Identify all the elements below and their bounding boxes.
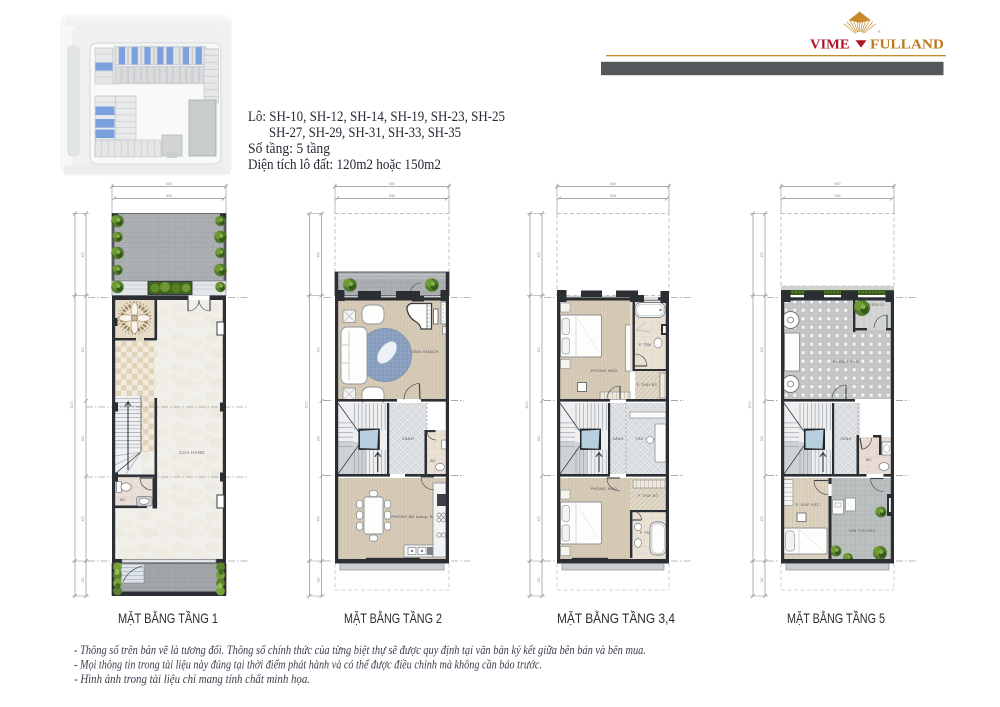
svg-text:160: 160 [537, 577, 541, 583]
svg-text:470: 470 [317, 252, 321, 258]
svg-text:Số tầng: 5 tầng: Số tầng: 5 tầng [248, 141, 331, 157]
svg-text:WC: WC [866, 458, 873, 462]
svg-text:600: 600 [835, 182, 841, 186]
svg-text:P. THAY ĐỒ: P. THAY ĐỒ [638, 493, 659, 498]
svg-text:- Mọi thông tin trong tài liệu: - Mọi thông tin trong tài liệu này đúng … [74, 658, 542, 672]
svg-text:PHÒNG ĂN &amp; BẾP: PHÒNG ĂN &amp; BẾP [391, 514, 438, 519]
svg-text:SẢNH: SẢNH [612, 436, 623, 441]
svg-text:2000: 2000 [70, 401, 74, 409]
svg-text:600: 600 [610, 182, 616, 186]
svg-text:SẢNH: SẢNH [402, 436, 414, 441]
svg-text:WC: WC [430, 459, 437, 463]
svg-text:P. TẮM: P. TẮM [639, 342, 652, 347]
svg-text:P. THAY ĐỒ: P. THAY ĐỒ [637, 382, 658, 387]
svg-text:470: 470 [317, 516, 321, 522]
svg-text:Lô: SH-10, SH-12, SH-14, SH-19: Lô: SH-10, SH-12, SH-14, SH-19, SH-23, S… [248, 109, 505, 125]
svg-text:470: 470 [81, 252, 85, 258]
svg-text:VIME: VIME [810, 37, 850, 52]
svg-text:500: 500 [317, 347, 321, 353]
svg-text:536: 536 [610, 194, 616, 198]
svg-text:320: 320 [81, 436, 85, 442]
svg-text:SÂN THƯỢNG: SÂN THƯỢNG [848, 529, 875, 533]
svg-text:SẢNH: SẢNH [840, 436, 851, 441]
svg-text:- Hình ảnh trong tài liệu chỉ: - Hình ảnh trong tài liệu chỉ mang tính … [74, 672, 310, 686]
svg-text:536: 536 [166, 194, 172, 198]
svg-text:160: 160 [317, 577, 321, 583]
svg-text:470: 470 [760, 516, 764, 522]
svg-text:500: 500 [81, 347, 85, 353]
svg-text:CỬA HÀNG: CỬA HÀNG [179, 450, 205, 455]
svg-text:600: 600 [389, 182, 395, 186]
svg-text:320: 320 [537, 436, 541, 442]
svg-text:470: 470 [537, 252, 541, 258]
svg-text:MẶT BẰNG TẦNG 5: MẶT BẰNG TẦNG 5 [787, 609, 885, 626]
svg-text:MẶT BẰNG TẦNG 1: MẶT BẰNG TẦNG 1 [118, 609, 218, 626]
svg-text:MẶT BẰNG TẦNG 2: MẶT BẰNG TẦNG 2 [344, 609, 442, 626]
svg-text:600: 600 [166, 182, 172, 186]
svg-text:320: 320 [317, 436, 321, 442]
svg-text:2000: 2000 [748, 401, 752, 409]
svg-text:PHÒNG THỜ: PHÒNG THỜ [833, 359, 860, 364]
svg-text:P. GIÚP VIỆC: P. GIÚP VIỆC [796, 502, 820, 507]
svg-text:536: 536 [835, 194, 841, 198]
svg-text:470: 470 [81, 516, 85, 522]
svg-text:- Thông số trên bản vẽ là tươn: - Thông số trên bản vẽ là tương đối. Thô… [74, 643, 646, 657]
svg-text:2000: 2000 [305, 401, 309, 409]
svg-text:2000: 2000 [525, 401, 529, 409]
svg-text:470: 470 [537, 516, 541, 522]
svg-text:®: ® [878, 29, 882, 34]
svg-text:PHÒNG NGỦ: PHÒNG NGỦ [591, 368, 618, 373]
svg-text:Diện tích lô đất: 120m2 hoặc 1: Diện tích lô đất: 120m2 hoặc 150m2 [248, 157, 441, 173]
svg-text:160: 160 [81, 577, 85, 583]
svg-text:536: 536 [389, 194, 395, 198]
svg-text:PHÒNG NGỦ: PHÒNG NGỦ [591, 486, 618, 491]
svg-text:MẶT BẰNG TẦNG 3,4: MẶT BẰNG TẦNG 3,4 [557, 609, 675, 626]
svg-text:500: 500 [760, 347, 764, 353]
svg-text:160: 160 [760, 577, 764, 583]
svg-text:470: 470 [760, 252, 764, 258]
svg-text:SH-27, SH-29, SH-31, SH-33, SH: SH-27, SH-29, SH-31, SH-33, SH-35 [269, 125, 461, 141]
svg-text:320: 320 [760, 436, 764, 442]
svg-text:FULLAND: FULLAND [870, 37, 944, 52]
svg-text:WC: WC [120, 498, 127, 502]
svg-text:500: 500 [537, 347, 541, 353]
